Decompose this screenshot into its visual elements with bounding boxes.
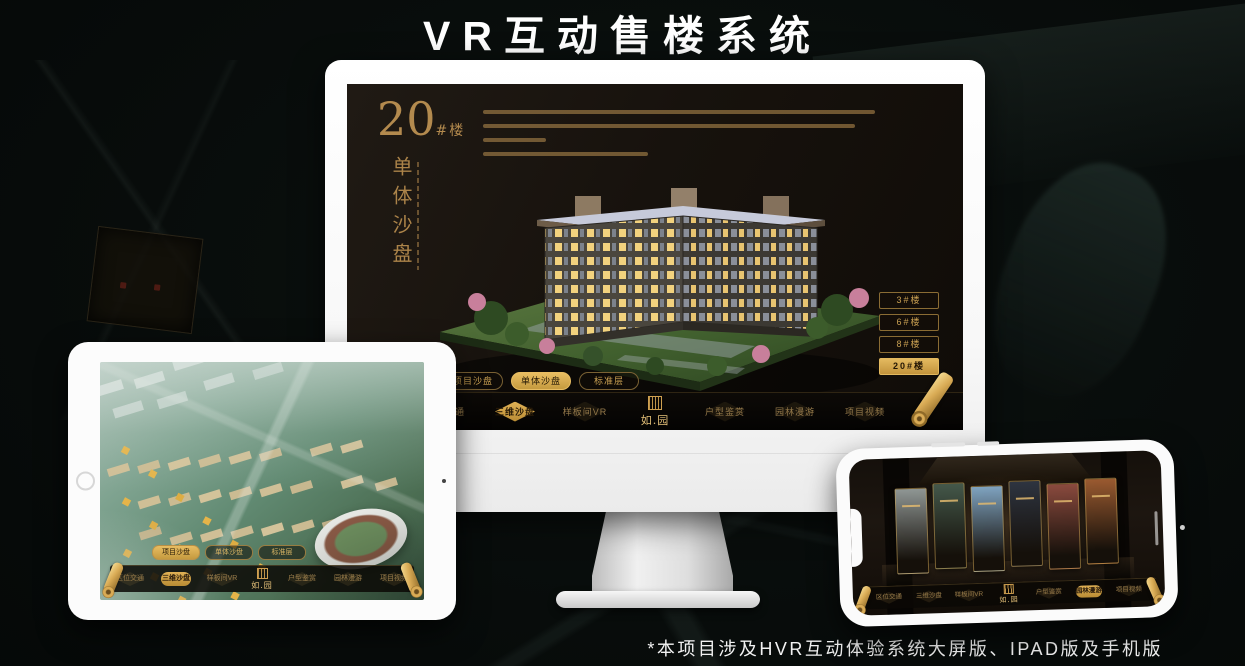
footnote-text: *本项目涉及HVR互动体验系统大屏版、IPAD版及手机版 — [647, 635, 1163, 661]
scroll-handle-icon[interactable] — [855, 585, 872, 613]
floor-button[interactable]: 6#楼 — [879, 314, 939, 331]
menu-item[interactable]: 样板间VR — [556, 398, 614, 426]
card-caption-line — [1092, 495, 1110, 498]
brand-logo: 如.园 — [626, 396, 684, 428]
phone-device: 区位交通 三维沙盘 样板间VR 如.园 户型鉴赏 园林漫游 — [835, 439, 1178, 628]
tablet-menubar: 区位交通 三维沙盘 样板间VR 如.园 户型鉴赏 园林漫游 — [110, 565, 414, 592]
floor-selector: 3#楼 6#楼 8#楼 20#楼 — [879, 292, 939, 375]
menu-item[interactable]: 户型鉴赏 — [282, 569, 322, 589]
logo-seal-icon — [257, 568, 268, 579]
description-line — [483, 152, 648, 156]
subtab-button[interactable]: 单体沙盘 — [205, 545, 253, 560]
phone-volume-button — [931, 442, 965, 447]
scroll-handle-icon[interactable] — [1145, 576, 1164, 603]
logo-text: 如.园 — [992, 594, 1026, 605]
subtab-button[interactable]: 标准层 — [258, 545, 306, 560]
background-plaque — [87, 226, 204, 334]
tablet-camera-icon — [442, 479, 446, 483]
building-number-suffix: #楼 — [436, 123, 466, 139]
panorama-card[interactable] — [1084, 478, 1119, 565]
phone-notch — [850, 509, 863, 567]
menu-item[interactable]: 园林漫游 — [1072, 582, 1107, 601]
page-canvas: VR互动售楼系统 20#楼 单体沙盘 — [0, 0, 1245, 666]
menu-item[interactable]: 园林漫游 — [766, 398, 824, 426]
menu-item[interactable]: 项目视频 — [836, 398, 894, 426]
menu-group-right: 户型鉴赏 园林漫游 项目视频 — [282, 569, 414, 589]
floor-button[interactable]: 20#楼 — [879, 358, 939, 375]
tablet-device: 项目沙盘 单体沙盘 标准层 区位交通 三维沙盘 样板间VR — [68, 342, 456, 620]
plaque-seal-icon — [120, 282, 127, 289]
panorama-card[interactable] — [1008, 480, 1043, 567]
description-line — [483, 110, 875, 114]
menu-item[interactable]: 样板间VR — [952, 586, 987, 605]
tablet-screen: 项目沙盘 单体沙盘 标准层 区位交通 三维沙盘 样板间VR — [100, 362, 424, 600]
card-caption-line — [978, 502, 996, 505]
phone-power-button — [977, 441, 999, 446]
menu-item[interactable]: 样板间VR — [202, 569, 242, 589]
description-text-block — [483, 110, 875, 166]
panorama-card[interactable] — [932, 482, 967, 569]
menu-item[interactable]: 项目视频 — [1112, 581, 1147, 600]
menu-item[interactable]: 户型鉴赏 — [696, 398, 754, 426]
tablet-subtabs: 项目沙盘 单体沙盘 标准层 — [152, 545, 306, 560]
subtitle-caption-line — [417, 162, 419, 270]
logo-text: 如.园 — [626, 412, 684, 428]
menu-item[interactable]: 三维沙盘 — [912, 587, 947, 606]
building-number: 20 — [377, 92, 436, 146]
phone-camera-icon — [1180, 525, 1185, 530]
menu-group-right: 户型鉴赏 园林漫游 项目视频 — [696, 398, 894, 426]
subtab-button[interactable]: 标准层 — [579, 372, 639, 390]
building-3d-model[interactable] — [425, 170, 895, 405]
brand-logo: 如.园 — [248, 568, 276, 591]
description-line — [483, 124, 855, 128]
card-caption-line — [1016, 497, 1034, 500]
monitor-base — [556, 591, 760, 608]
page-title: VR互动售楼系统 — [0, 2, 1245, 62]
menu-item[interactable]: 三维沙盘 — [156, 569, 196, 589]
plaque-seal-icon — [154, 284, 161, 291]
menu-item[interactable]: 户型鉴赏 — [1032, 583, 1067, 602]
card-caption-line — [940, 500, 958, 503]
panorama-card[interactable] — [895, 488, 930, 575]
floor-button[interactable]: 3#楼 — [879, 292, 939, 309]
phone-screen: 区位交通 三维沙盘 样板间VR 如.园 户型鉴赏 园林漫游 — [849, 450, 1166, 616]
panorama-card[interactable] — [1046, 483, 1081, 570]
building-number-heading: 20#楼 — [377, 96, 465, 142]
tablet-home-button[interactable] — [76, 472, 95, 491]
monitor-stand — [592, 511, 733, 594]
logo-seal-icon — [648, 396, 662, 410]
logo-text: 如.园 — [248, 580, 276, 591]
menu-group-left: 区位交通 三维沙盘 样板间VR — [110, 569, 242, 589]
menu-group-left: 区位交通 三维沙盘 样板间VR — [872, 586, 987, 608]
panorama-card-strip — [894, 478, 1119, 571]
brand-logo: 如.园 — [992, 583, 1027, 605]
screen-subtitle-vertical: 单体沙盘 — [387, 156, 416, 272]
card-caption-line — [1054, 500, 1072, 503]
menu-group-right: 户型鉴赏 园林漫游 项目视频 — [1032, 581, 1147, 603]
sandbox-subtabs: 项目沙盘 单体沙盘 标准层 — [443, 372, 639, 390]
card-caption-line — [902, 505, 920, 508]
logo-seal-icon — [1004, 583, 1014, 593]
menu-item[interactable]: 区位交通 — [872, 588, 907, 607]
subtab-button[interactable]: 单体沙盘 — [511, 372, 571, 390]
subtab-button[interactable]: 项目沙盘 — [152, 545, 200, 560]
panorama-card[interactable] — [971, 485, 1006, 572]
menu-item[interactable]: 三维沙盘 — [486, 398, 544, 426]
menu-item[interactable]: 园林漫游 — [328, 569, 368, 589]
floor-button[interactable]: 8#楼 — [879, 336, 939, 353]
description-line — [483, 138, 546, 142]
phone-home-indicator[interactable] — [1154, 511, 1158, 545]
